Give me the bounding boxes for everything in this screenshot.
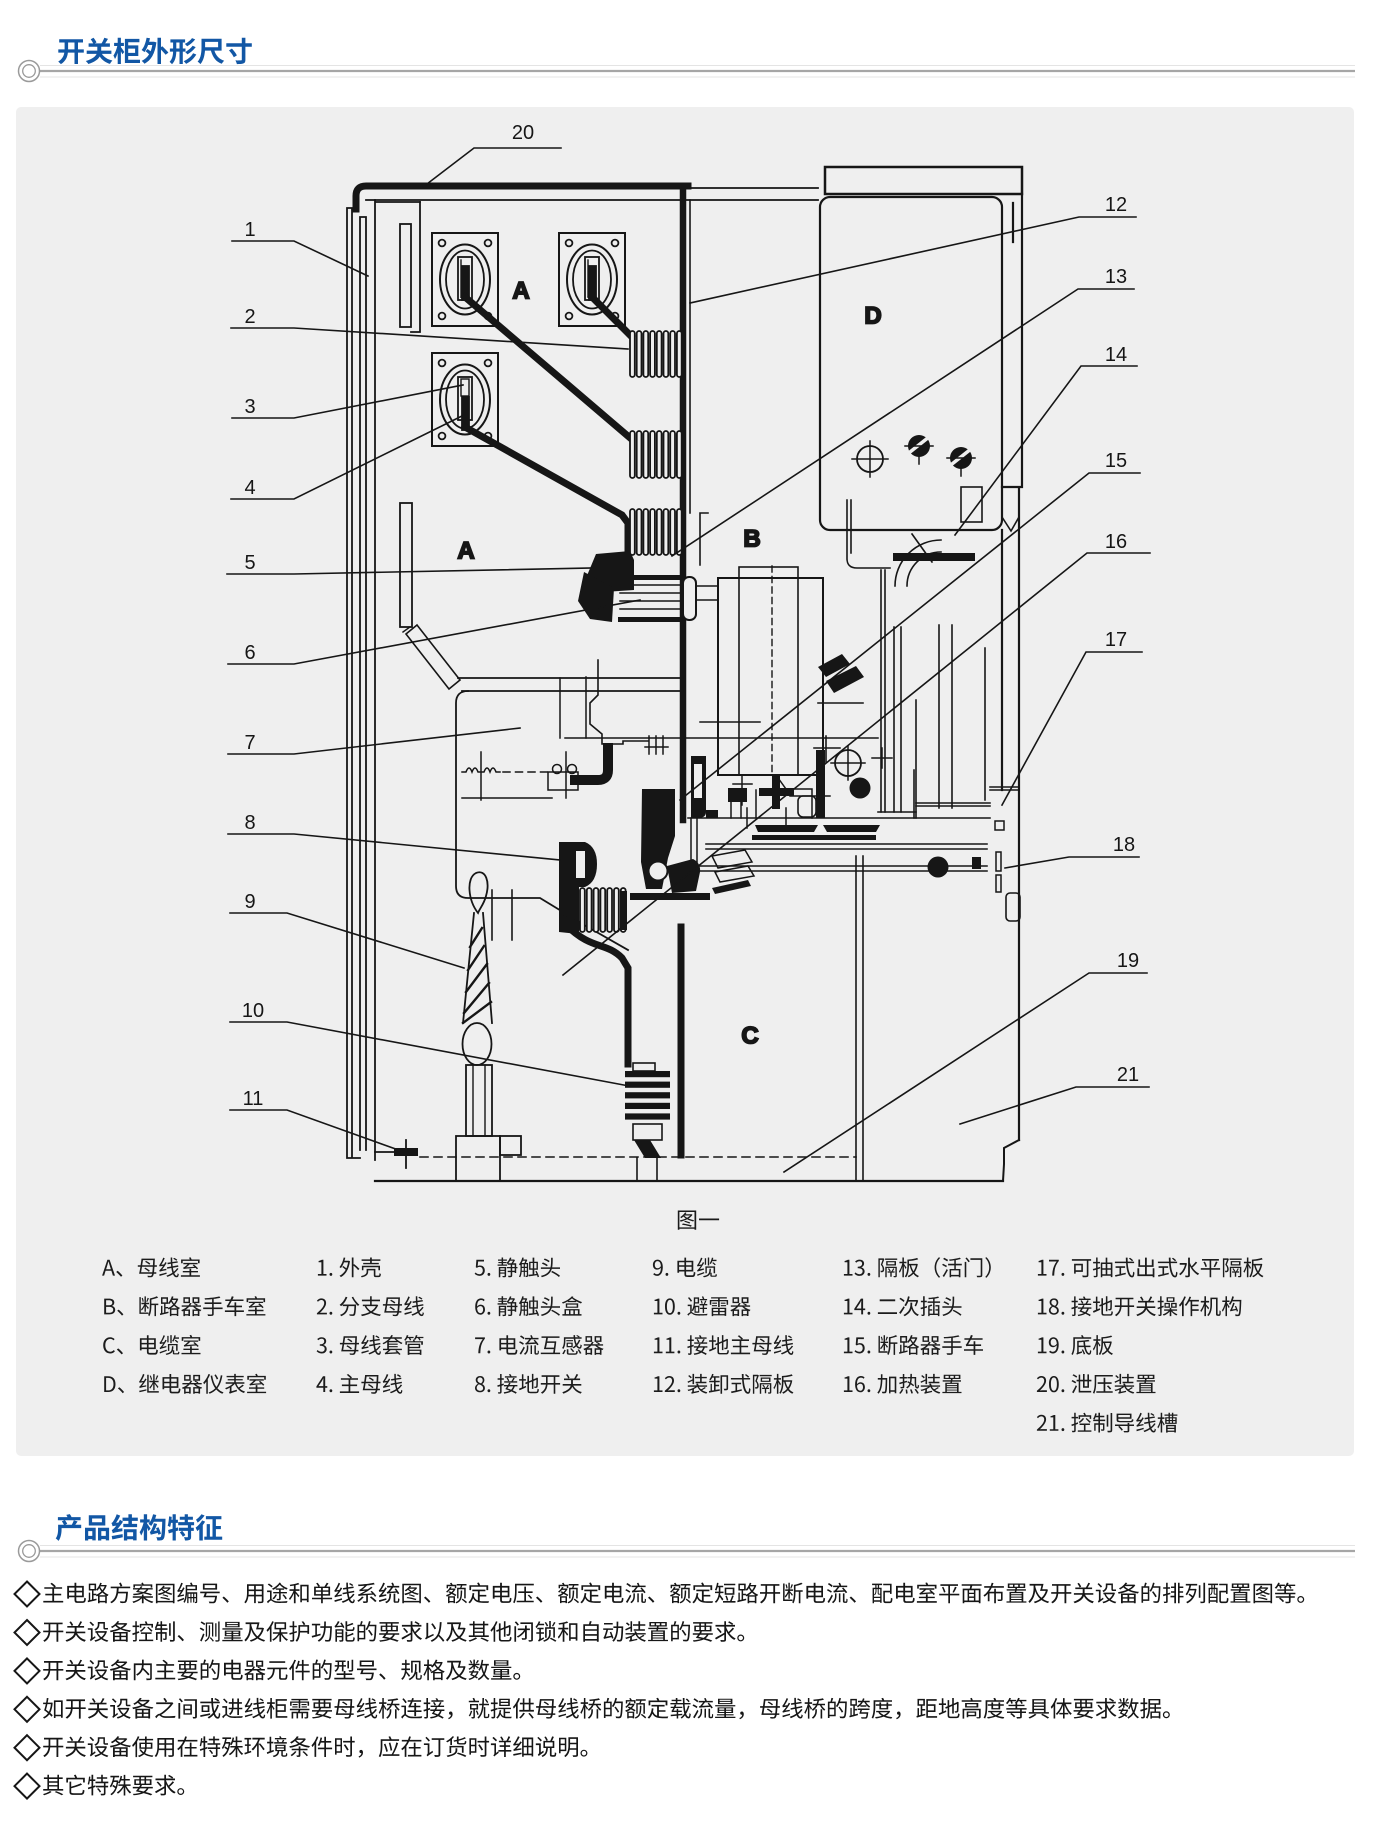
svg-text:20: 20	[512, 122, 534, 144]
svg-text:7: 7	[244, 732, 255, 754]
svg-text:6: 6	[244, 642, 255, 664]
svg-text:21: 21	[1117, 1064, 1139, 1086]
svg-text:19: 19	[1117, 950, 1139, 972]
svg-text:A: A	[512, 278, 529, 305]
svg-text:12: 12	[1105, 194, 1127, 216]
svg-text:5: 5	[244, 552, 255, 574]
svg-text:1: 1	[244, 219, 255, 241]
svg-text:C: C	[741, 1023, 758, 1050]
svg-text:A: A	[457, 538, 474, 565]
svg-text:10: 10	[242, 1000, 264, 1022]
svg-text:18: 18	[1113, 834, 1135, 856]
svg-text:14: 14	[1105, 344, 1127, 366]
svg-text:B: B	[743, 526, 760, 553]
svg-text:11: 11	[243, 1088, 264, 1110]
svg-text:2: 2	[244, 306, 255, 328]
svg-text:D: D	[864, 303, 881, 330]
svg-text:15: 15	[1105, 450, 1127, 472]
svg-text:13: 13	[1105, 266, 1127, 288]
svg-text:16: 16	[1105, 531, 1127, 553]
svg-text:8: 8	[244, 812, 255, 834]
svg-text:17: 17	[1105, 629, 1127, 651]
svg-text:9: 9	[244, 891, 255, 913]
svg-text:4: 4	[244, 477, 255, 499]
svg-text:3: 3	[244, 396, 255, 418]
